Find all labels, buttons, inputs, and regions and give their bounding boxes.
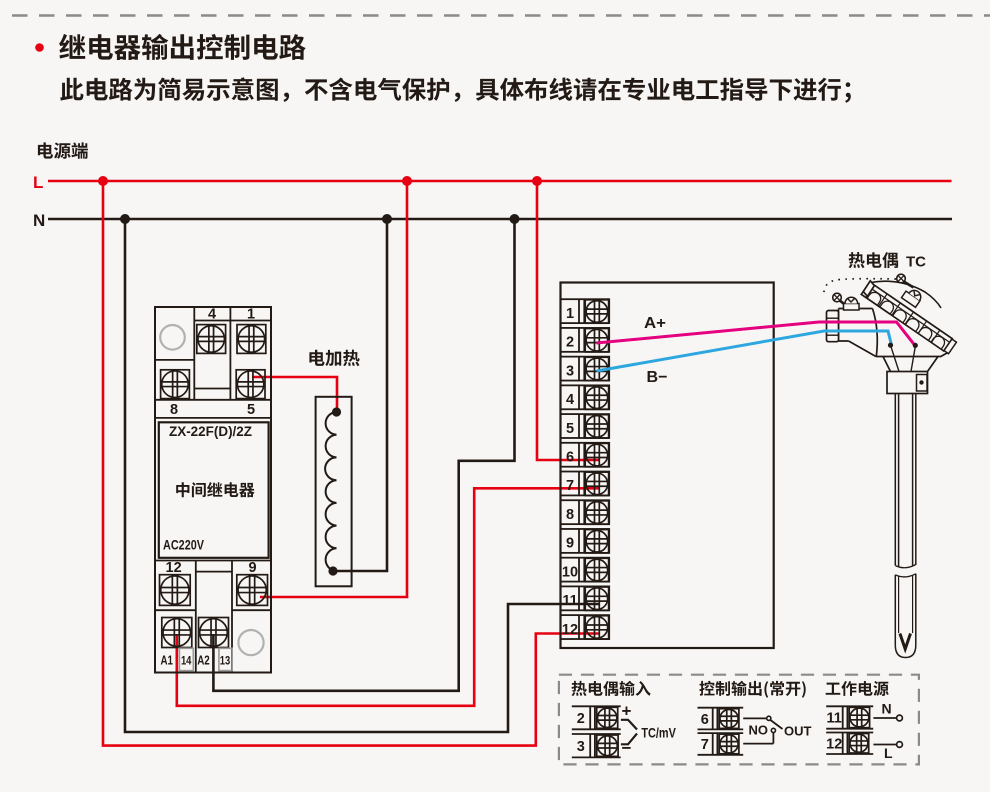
svg-text:8: 8 [566, 507, 574, 523]
svg-text:TC/mV: TC/mV [641, 726, 676, 741]
svg-text:+: + [622, 702, 632, 721]
svg-text:A2: A2 [197, 653, 210, 668]
svg-text:7: 7 [701, 737, 709, 753]
svg-text:6: 6 [566, 450, 574, 466]
svg-text:9: 9 [566, 536, 574, 552]
svg-text:1: 1 [247, 307, 255, 323]
svg-text:A1: A1 [161, 653, 174, 668]
svg-text:7: 7 [566, 478, 574, 494]
svg-text:4: 4 [208, 307, 216, 323]
svg-text:NO: NO [749, 723, 769, 738]
svg-text:5: 5 [566, 421, 574, 437]
svg-text:12: 12 [562, 622, 578, 638]
svg-text:2: 2 [566, 335, 574, 351]
svg-text:11: 11 [827, 711, 842, 727]
svg-text:1: 1 [566, 306, 574, 322]
svg-text:A+: A+ [644, 315, 666, 332]
svg-text:12: 12 [826, 736, 842, 752]
svg-text:L: L [33, 173, 43, 192]
svg-text:N: N [882, 701, 892, 717]
svg-text:OUT: OUT [784, 724, 812, 739]
svg-text:L: L [884, 745, 893, 761]
svg-text:3: 3 [566, 363, 574, 379]
svg-text:14: 14 [181, 653, 192, 667]
svg-text:TC: TC [906, 254, 926, 271]
svg-text:12: 12 [166, 560, 182, 576]
svg-text:9: 9 [248, 560, 256, 576]
svg-text:5: 5 [247, 402, 255, 418]
svg-text:B−: B− [647, 369, 668, 386]
svg-text:6: 6 [701, 712, 709, 728]
svg-text:ZX-22F(D)/2Z: ZX-22F(D)/2Z [169, 424, 252, 440]
svg-text:N: N [33, 211, 45, 230]
svg-text:AC220V: AC220V [163, 538, 204, 554]
svg-text:2: 2 [577, 711, 585, 727]
svg-text:10: 10 [562, 564, 578, 580]
svg-text:3: 3 [577, 739, 585, 755]
svg-text:4: 4 [566, 392, 574, 408]
svg-text:11: 11 [562, 593, 577, 609]
svg-text:13: 13 [220, 653, 231, 667]
svg-text:8: 8 [170, 402, 178, 418]
